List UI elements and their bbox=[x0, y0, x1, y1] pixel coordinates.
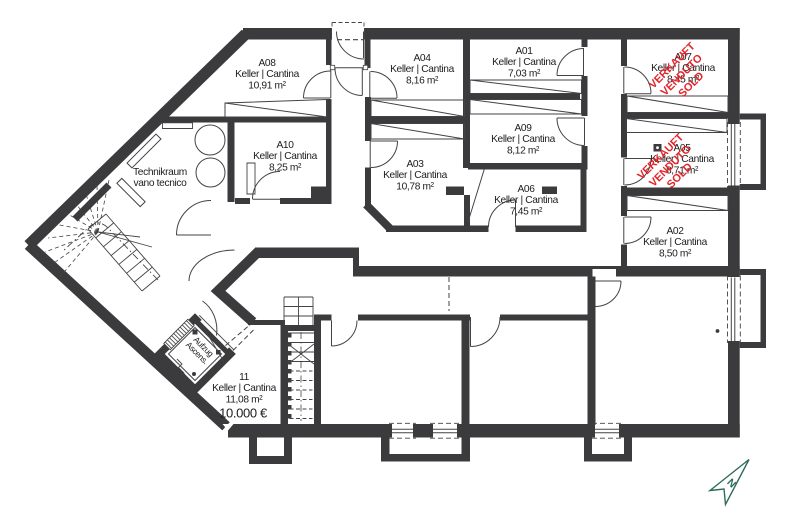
svg-text:vano tecnico: vano tecnico bbox=[133, 178, 187, 189]
svg-text:7,45 m²: 7,45 m² bbox=[510, 206, 543, 217]
svg-text:11: 11 bbox=[239, 372, 250, 383]
svg-text:7,03 m²: 7,03 m² bbox=[508, 68, 541, 79]
svg-text:10,78 m²: 10,78 m² bbox=[396, 181, 434, 192]
svg-text:8,50 m²: 8,50 m² bbox=[659, 248, 692, 259]
svg-text:8,12 m²: 8,12 m² bbox=[507, 145, 540, 156]
svg-text:Keller | Cantina: Keller | Cantina bbox=[235, 69, 300, 80]
svg-text:Keller | Cantina: Keller | Cantina bbox=[390, 64, 455, 75]
svg-text:A02: A02 bbox=[666, 226, 684, 237]
svg-text:10,91 m²: 10,91 m² bbox=[248, 80, 286, 91]
svg-text:Keller | Cantina: Keller | Cantina bbox=[383, 170, 448, 181]
svg-text:Keller | Cantina: Keller | Cantina bbox=[643, 237, 708, 248]
svg-text:Keller | Cantina: Keller | Cantina bbox=[494, 195, 559, 206]
svg-text:A06: A06 bbox=[517, 184, 535, 195]
svg-text:8,25 m²: 8,25 m² bbox=[269, 162, 302, 173]
svg-text:Keller | Cantina: Keller | Cantina bbox=[212, 383, 277, 394]
svg-text:Keller | Cantina: Keller | Cantina bbox=[492, 57, 557, 68]
svg-text:Keller | Cantina: Keller | Cantina bbox=[253, 151, 318, 162]
svg-text:A01: A01 bbox=[515, 46, 533, 57]
svg-text:A10: A10 bbox=[276, 140, 294, 151]
svg-text:A03: A03 bbox=[406, 159, 424, 170]
svg-text:10.000 €: 10.000 € bbox=[219, 406, 268, 421]
svg-text:8,16 m²: 8,16 m² bbox=[406, 75, 439, 86]
svg-text:A08: A08 bbox=[258, 58, 276, 69]
svg-text:11,08 m²: 11,08 m² bbox=[226, 394, 264, 405]
svg-text:Keller | Cantina: Keller | Cantina bbox=[491, 134, 556, 145]
svg-text:A04: A04 bbox=[413, 53, 431, 64]
svg-text:Technikraum: Technikraum bbox=[133, 167, 187, 178]
svg-text:A09: A09 bbox=[514, 123, 532, 134]
